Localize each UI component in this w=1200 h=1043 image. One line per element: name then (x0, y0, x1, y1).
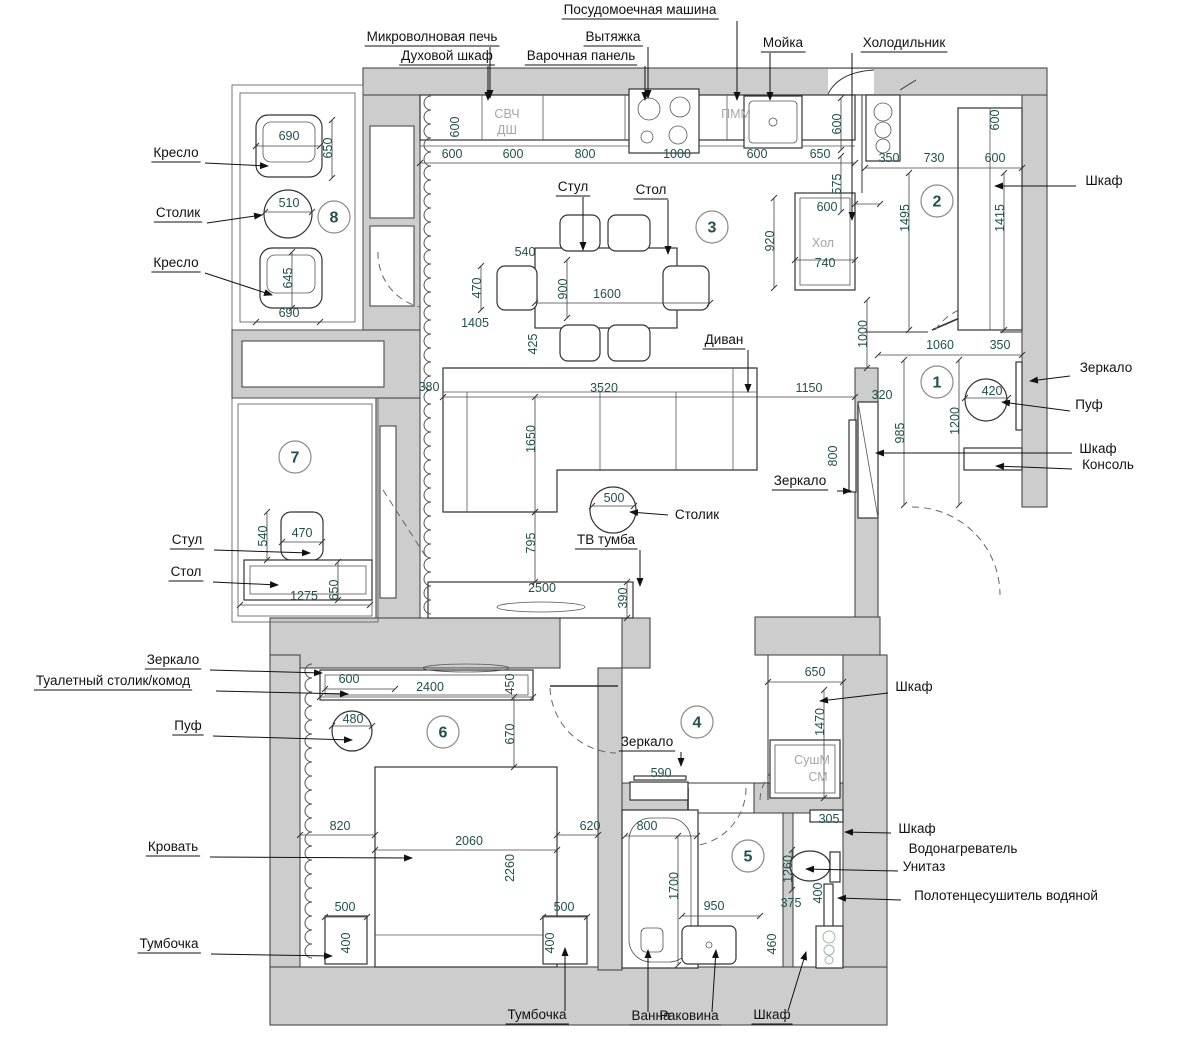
dim-text: 650 (810, 147, 831, 161)
window (370, 126, 414, 218)
floor-plan-page: { "colors": { "wall": "#cdcdcd", "line":… (0, 0, 1200, 1043)
callout-label: Зеркало (1080, 360, 1132, 375)
wall-right-bottom (843, 655, 887, 1003)
dim-text: 305 (819, 812, 840, 826)
dim-text: 1200 (948, 407, 962, 435)
dim-text: 3520 (590, 381, 618, 395)
bed (375, 767, 557, 967)
dim-text: 575 (830, 174, 844, 195)
callout-label: Шкаф (753, 1007, 790, 1022)
dim-text: 690 (279, 129, 300, 143)
dim-text: 1275 (290, 589, 318, 603)
wall-niche-top (755, 617, 880, 655)
window (370, 226, 414, 306)
dim-text: 470 (292, 526, 313, 540)
dim-text: 2060 (455, 834, 483, 848)
living-furniture (428, 215, 856, 618)
callout-label: ТВ тумба (577, 532, 635, 547)
vent-notch (828, 69, 874, 94)
dim-text: 1000 (663, 147, 691, 161)
dim-text: 540 (515, 245, 536, 259)
window (380, 426, 396, 598)
dim-text: 510 (279, 196, 300, 210)
curtain-line (305, 664, 312, 958)
callout-label: Зеркало (621, 734, 673, 749)
callout-label: Стол (171, 564, 202, 579)
room2-furniture (958, 108, 1022, 330)
callout-label: Столик (675, 507, 719, 522)
dim-text: 650 (327, 580, 341, 601)
floor-plan: 6006008001000600650600600575600740920350… (0, 0, 1200, 1043)
dim-text: 1650 (524, 425, 538, 453)
callout-label: Шкаф (1085, 173, 1122, 188)
dim-text: 670 (503, 724, 517, 745)
callout-label: Пуф (174, 718, 201, 733)
dim-text: 620 (580, 819, 601, 833)
dim-text: 1260 (781, 855, 795, 883)
dim-text: 350 (990, 338, 1011, 352)
chair (497, 266, 537, 310)
dim-text: 730 (924, 151, 945, 165)
callout-label: Кровать (148, 839, 198, 854)
callout-label: Консоль (1082, 457, 1134, 472)
dim-text: 375 (781, 896, 802, 910)
callout-label: Шкаф (1079, 441, 1116, 456)
callout-label: Холодильник (863, 35, 946, 50)
appliance-text: Хол (812, 236, 834, 250)
callout-label: Посудомоечная машина (564, 2, 717, 17)
dim-text: 590 (651, 766, 672, 780)
toilet-tank (830, 852, 840, 882)
dim-text: 600 (988, 110, 1002, 131)
dim-text: 740 (815, 256, 836, 270)
doors (378, 252, 1000, 846)
dim-text: 600 (747, 147, 768, 161)
dim-text: 650 (805, 665, 826, 679)
chair (560, 325, 600, 361)
wc-cabinet (816, 926, 843, 968)
dim-text: 600 (448, 117, 462, 138)
chair (608, 215, 650, 251)
curtain-line (424, 96, 431, 614)
dim-text: 425 (526, 334, 540, 355)
dim-text: 920 (763, 231, 777, 252)
room-number: 4 (693, 715, 702, 732)
room-number: 7 (291, 450, 300, 467)
wall-bedroom-right (598, 668, 622, 970)
dim-text: 1415 (993, 204, 1007, 232)
callout-label: Мойка (763, 35, 804, 50)
dim-text: 1470 (813, 708, 827, 736)
dim-text: 350 (879, 151, 900, 165)
wall-right (1022, 95, 1047, 507)
dim-text: 540 (256, 526, 270, 547)
chair (608, 325, 650, 361)
room-number: 8 (330, 210, 339, 227)
wall-top (363, 68, 1047, 95)
dim-text: 400 (543, 933, 557, 954)
dim-text: 600 (503, 147, 524, 161)
washbasin (682, 926, 736, 964)
room-number: 1 (933, 375, 942, 392)
dim-text: 480 (343, 712, 364, 726)
dim-text: 690 (279, 306, 300, 320)
dim-text: 1700 (667, 872, 681, 900)
dim-text: 500 (554, 900, 575, 914)
toilet (790, 851, 830, 881)
dim-text: 2400 (416, 680, 444, 694)
dim-text: 800 (575, 147, 596, 161)
callout-label: Кресло (153, 255, 198, 270)
callout-label: Стул (172, 532, 202, 547)
bath-door-opening (688, 783, 754, 813)
wall-mirror (849, 420, 856, 492)
callout-label: Шкаф (898, 821, 935, 836)
entry-door-arc (912, 507, 1000, 595)
window (242, 341, 384, 387)
dim-text: 650 (321, 138, 335, 159)
callout-label: Зеркало (774, 473, 826, 488)
dim-text: 600 (985, 151, 1006, 165)
wall-bottom (270, 967, 887, 1025)
dim-text: 800 (826, 446, 840, 467)
dim-text: 1495 (898, 204, 912, 232)
dim-text: 500 (604, 491, 625, 505)
dim-text: 1060 (926, 338, 954, 352)
leader-arrow (207, 215, 262, 223)
callout-label: Раковина (659, 1008, 719, 1023)
callout-label: Водонагреватель (909, 841, 1018, 856)
callout-label: Микроволновая печь (367, 29, 498, 44)
callout-label: Варочная панель (527, 48, 636, 63)
room-number: 6 (439, 725, 448, 742)
callout-label: Зеркало (147, 652, 199, 667)
dim-text: 390 (616, 588, 630, 609)
appliance-text: ПММ (721, 107, 751, 121)
dim-text: 420 (982, 384, 1003, 398)
dim-text: 645 (281, 268, 295, 289)
dim-text: 2260 (503, 854, 517, 882)
dim-text: 600 (830, 114, 844, 135)
sink-icon (744, 96, 802, 148)
callout-label: Стул (558, 179, 588, 194)
dim-text: 600 (817, 200, 838, 214)
dim-text: 900 (556, 279, 570, 300)
cooktop-icon (629, 89, 699, 153)
dim-text: 400 (811, 883, 825, 904)
callout-label: Духовой шкаф (401, 48, 493, 63)
appliance-text: СМ (808, 770, 827, 784)
dim-text: 1405 (461, 316, 489, 330)
dim-text: 460 (765, 934, 779, 955)
callout-label: Шкаф (895, 679, 932, 694)
wall-stub (622, 618, 650, 668)
room-number: 3 (708, 220, 717, 237)
wall-bedroom-top (270, 618, 560, 668)
callout-label: Диван (705, 332, 744, 347)
dim-text: 320 (872, 388, 893, 402)
bedroom-furniture (320, 664, 587, 967)
dim-text: 600 (442, 147, 463, 161)
callout-label: Столик (156, 205, 200, 220)
callout-label: Пуф (1075, 397, 1102, 412)
dim-text: 985 (893, 423, 907, 444)
room-number: 5 (744, 849, 753, 866)
callout-label: Туалетный столик/комод (36, 673, 190, 688)
appliance-text: СВЧ (494, 107, 519, 121)
dim-text: 450 (503, 674, 517, 695)
console (630, 782, 688, 800)
dryer-washer-box (770, 740, 840, 798)
callout-label: Кресло (153, 145, 198, 160)
callout-label: Полотенцесушитель водяной (914, 888, 1098, 903)
dim-text: 800 (637, 819, 658, 833)
dim-text: 795 (524, 533, 538, 554)
dim-text: 2500 (528, 581, 556, 595)
dim-text: 380 (419, 380, 440, 394)
dim-text: 1600 (593, 287, 621, 301)
room-number: 2 (933, 194, 942, 211)
dim-text: 820 (330, 819, 351, 833)
dim-text: 400 (339, 933, 353, 954)
dim-text: 950 (704, 899, 725, 913)
callout-label: Тумбочка (508, 1007, 567, 1022)
dim-text: 1150 (796, 381, 823, 395)
appliance-text: СушМ (794, 753, 830, 767)
towel-rail (824, 884, 833, 928)
callout-label: Унитаз (903, 859, 946, 874)
dim-text: 1000 (856, 320, 870, 348)
dim-text: 600 (339, 672, 360, 686)
callout-label: Стол (636, 182, 667, 197)
bathroom-furniture (622, 810, 843, 968)
callout-label: Тумбочка (140, 936, 199, 951)
dim-text: 470 (470, 278, 484, 299)
dim-text: 500 (335, 900, 356, 914)
mirror (1016, 362, 1022, 430)
callout-label: Вытяжка (586, 29, 641, 44)
chair (560, 215, 600, 251)
appliance-text: ДШ (497, 123, 517, 137)
